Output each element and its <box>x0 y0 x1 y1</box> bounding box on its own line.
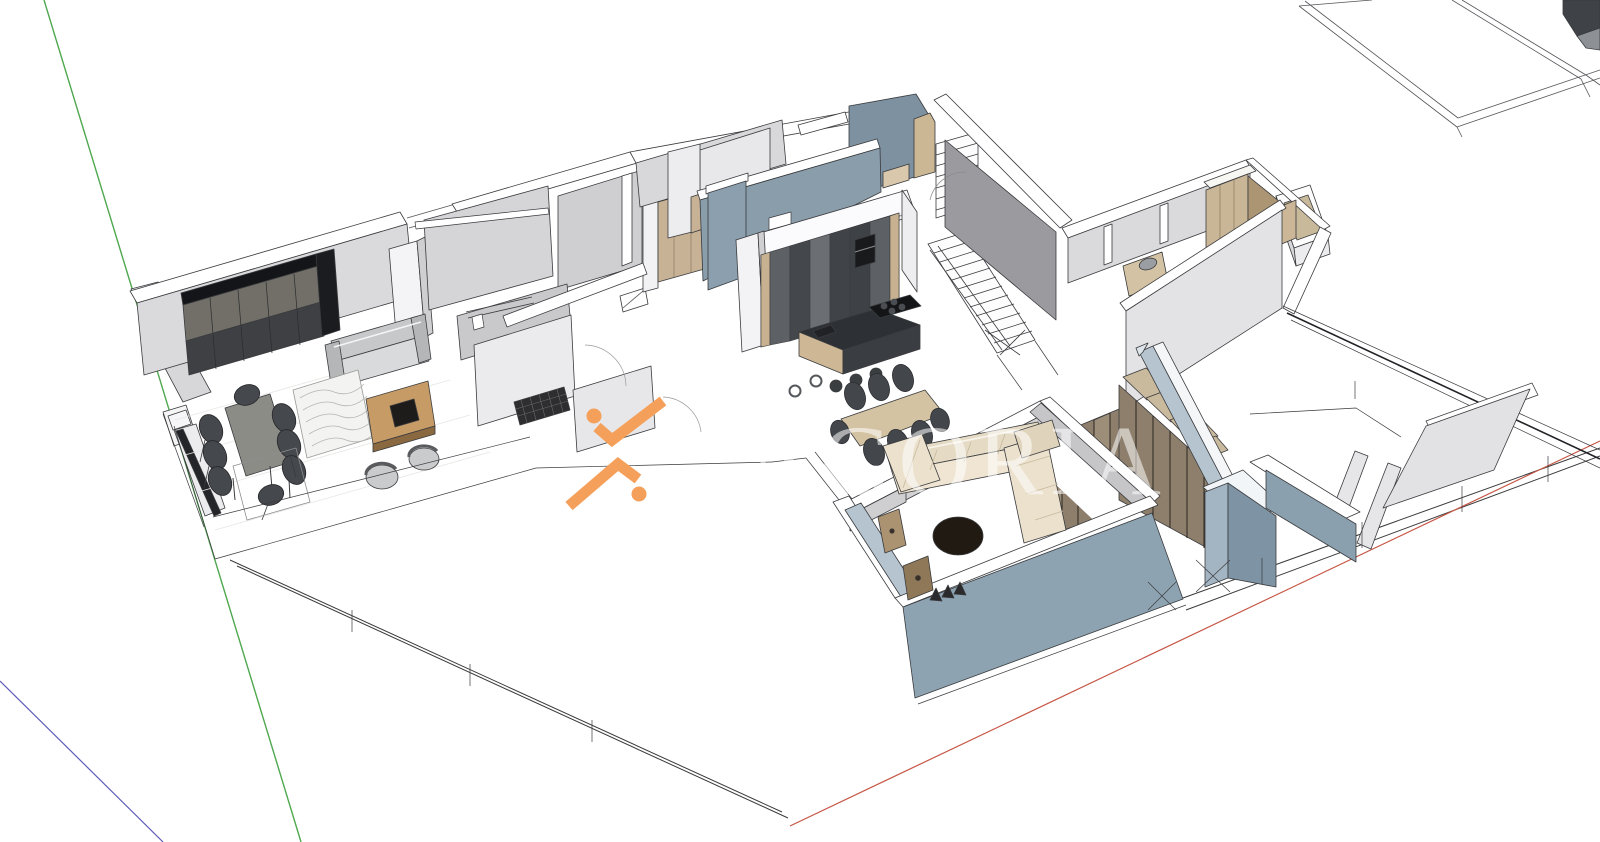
svg-text:AGORIA: AGORIA <box>742 405 1167 516</box>
